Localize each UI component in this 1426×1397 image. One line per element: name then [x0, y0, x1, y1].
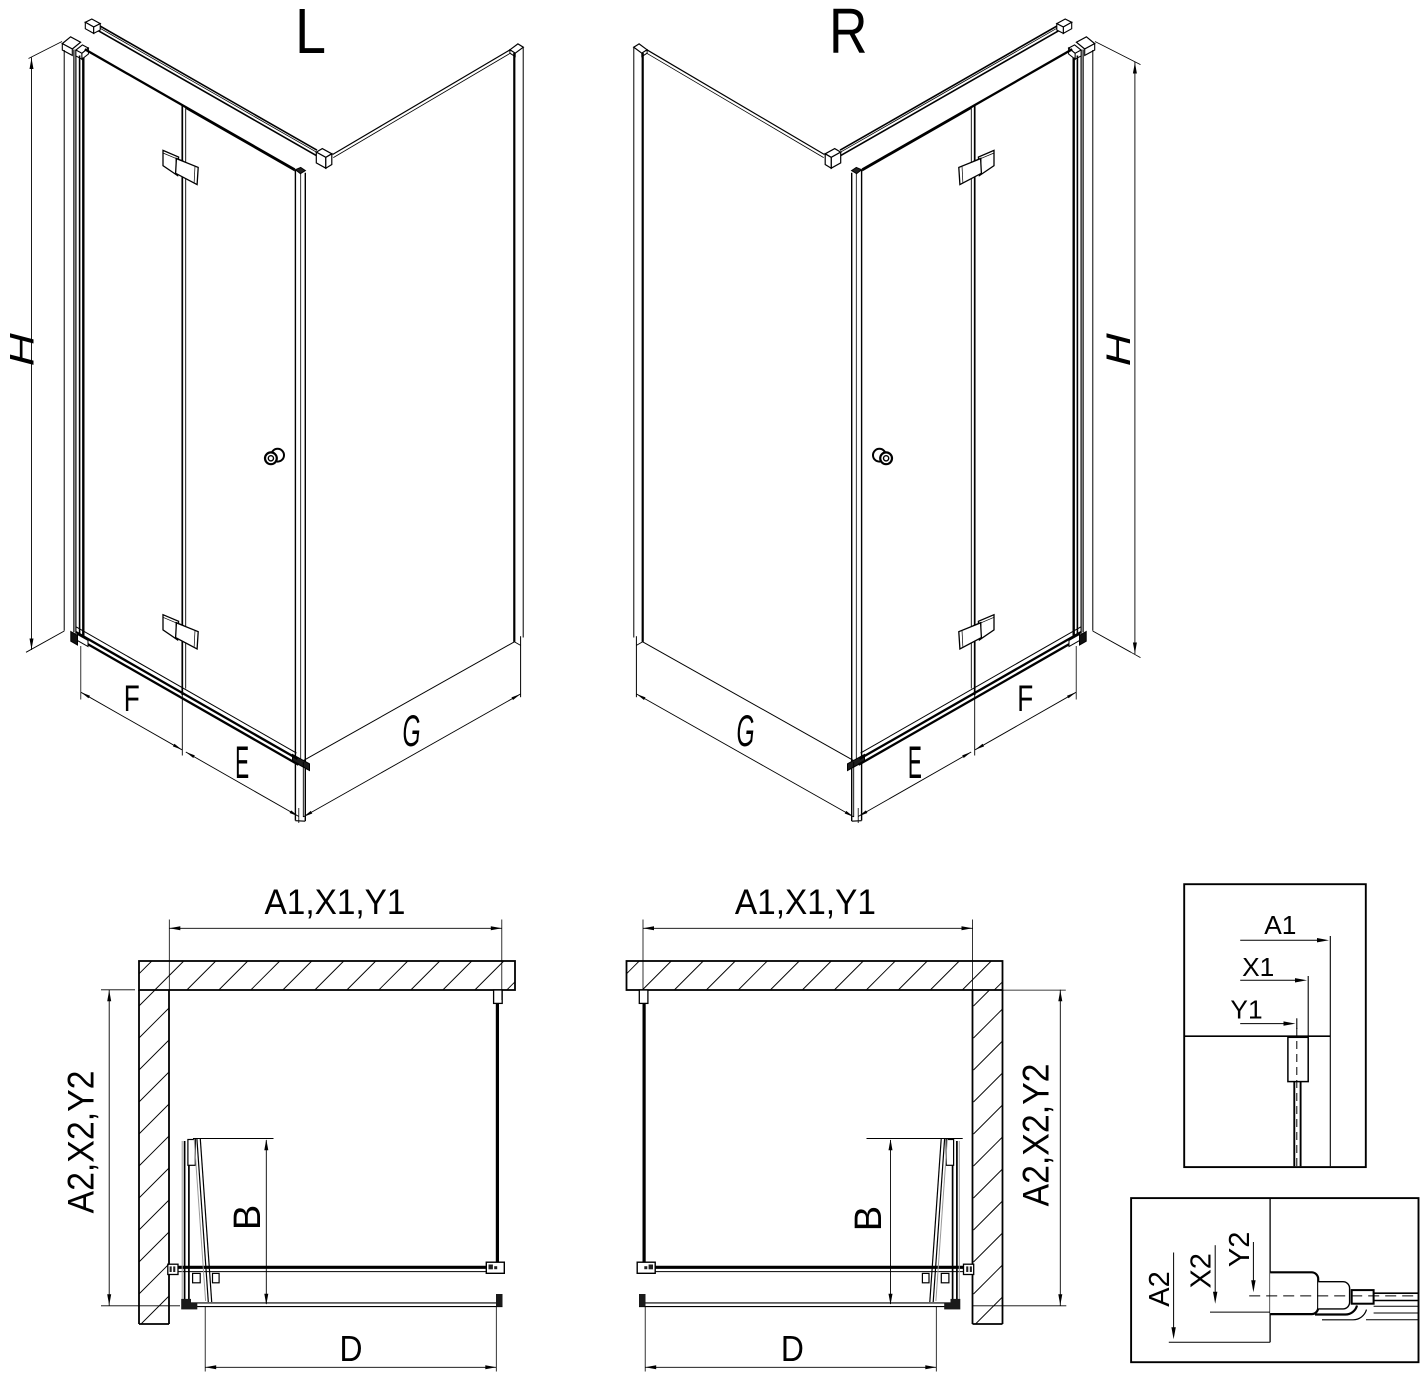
svg-text:H: H: [1100, 333, 1138, 367]
svg-text:A1,X1,Y1: A1,X1,Y1: [735, 883, 876, 922]
svg-text:A1,X1,Y1: A1,X1,Y1: [265, 883, 406, 922]
svg-text:A2,X2,Y2: A2,X2,Y2: [61, 1071, 102, 1214]
svg-text:E: E: [908, 737, 922, 788]
svg-text:G: G: [737, 707, 755, 756]
svg-text:A1: A1: [1264, 910, 1296, 940]
svg-text:A2: A2: [1144, 1271, 1176, 1306]
svg-text:A2,X2,Y2: A2,X2,Y2: [1016, 1064, 1057, 1207]
svg-text:G: G: [403, 707, 421, 756]
svg-text:L: L: [295, 0, 326, 67]
svg-text:X2: X2: [1186, 1253, 1218, 1288]
svg-text:Y2: Y2: [1224, 1232, 1256, 1267]
svg-text:X1: X1: [1242, 952, 1274, 982]
svg-text:B: B: [848, 1206, 890, 1231]
svg-text:H: H: [4, 333, 42, 367]
svg-text:B: B: [227, 1205, 269, 1230]
svg-text:F: F: [124, 678, 140, 719]
svg-text:E: E: [235, 737, 249, 788]
svg-text:F: F: [1017, 678, 1033, 719]
svg-text:Y1: Y1: [1230, 994, 1262, 1024]
svg-text:D: D: [340, 1328, 363, 1369]
svg-text:D: D: [781, 1328, 804, 1369]
svg-text:R: R: [829, 0, 868, 67]
